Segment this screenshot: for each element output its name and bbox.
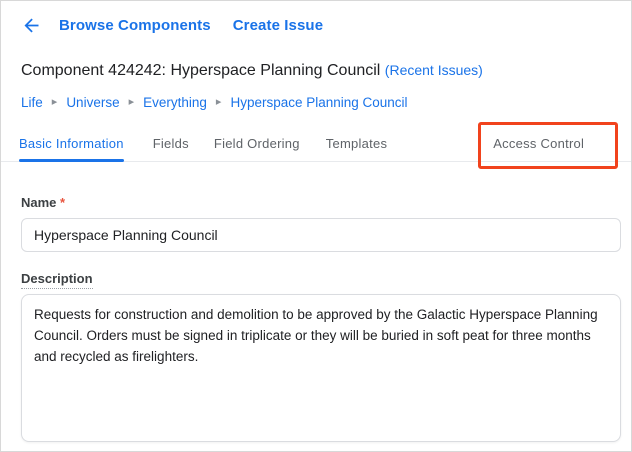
component-edit-page: Browse Components Create Issue Component… [0,0,632,452]
breadcrumb-item-universe[interactable]: Universe [66,94,119,111]
name-input[interactable] [21,218,621,252]
name-label-text: Name [21,195,56,210]
breadcrumb-item-everything[interactable]: Everything [143,94,207,111]
browse-components-link[interactable]: Browse Components [59,17,211,34]
tab-bar: Basic Information Fields Field Ordering … [1,136,631,162]
active-tab-underline [19,159,124,162]
tab-fields[interactable]: Fields [153,136,189,161]
tab-label: Field Ordering [214,136,300,151]
tab-access-control[interactable]: Access Control [493,136,584,161]
chevron-right-icon: ▸ [207,94,231,111]
component-title-text: Component 424242: Hyperspace Planning Co… [21,62,380,79]
description-field-label: Description [21,271,631,286]
description-textarea[interactable]: Requests for construction and demolition… [21,294,621,442]
chevron-right-icon: ▸ [43,94,67,111]
tab-label: Basic Information [19,136,124,151]
back-arrow-icon [21,15,42,36]
tab-field-ordering[interactable]: Field Ordering [214,136,300,161]
recent-issues-link[interactable]: (Recent Issues) [385,62,483,78]
name-field-label: Name * [21,195,631,210]
required-asterisk: * [60,195,65,210]
topbar: Browse Components Create Issue [1,1,631,35]
chevron-right-icon: ▸ [120,94,144,111]
breadcrumb-item-hyperspace-planning-council[interactable]: Hyperspace Planning Council [230,94,407,111]
back-button[interactable] [20,15,42,35]
tab-label: Access Control [493,136,584,151]
tab-label: Fields [153,136,189,151]
page-title: Component 424242: Hyperspace Planning Co… [21,60,631,81]
create-issue-link[interactable]: Create Issue [233,17,323,34]
description-label-text: Description [21,271,93,289]
breadcrumb-item-life[interactable]: Life [21,94,43,111]
tab-templates[interactable]: Templates [326,136,388,161]
tab-basic-information[interactable]: Basic Information [19,136,124,161]
tab-label: Templates [326,136,388,151]
breadcrumb: Life ▸ Universe ▸ Everything ▸ Hyperspac… [21,94,631,111]
